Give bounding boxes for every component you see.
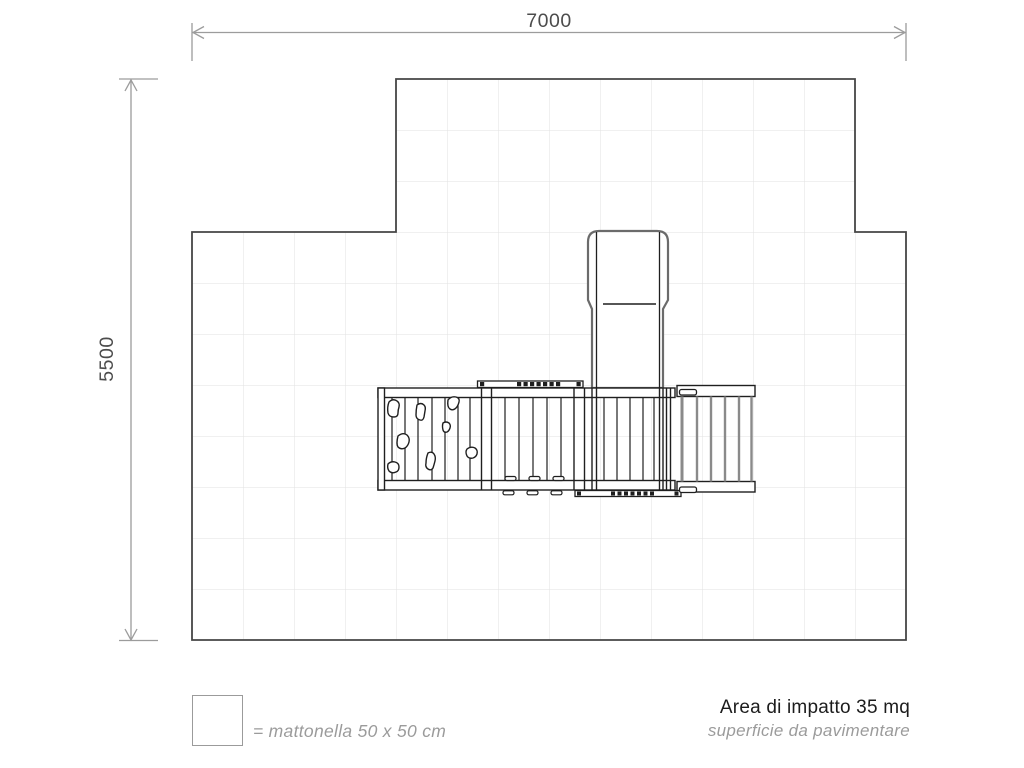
impact-area-title: Area di impatto 35 mq [708,697,910,719]
plan-page: 7000 5500 [0,0,1024,768]
dimension-width-label: 7000 [526,10,571,32]
legend-tile-label: = mattonella 50 x 50 cm [253,721,446,742]
top-access-bar [478,381,584,388]
impact-area-outline [192,79,906,640]
slide-outline [588,231,668,388]
dimension-height-label: 5500 [96,336,118,381]
legend-tile-swatch [192,695,243,746]
plan-drawing: 7000 5500 [0,0,1024,768]
dimension-left [119,79,158,641]
impact-area-note: Area di impatto 35 mq superficie da pavi… [708,697,910,741]
bottom-access-bar [575,491,681,497]
impact-area-subtitle: superficie da pavimentare [708,721,910,741]
